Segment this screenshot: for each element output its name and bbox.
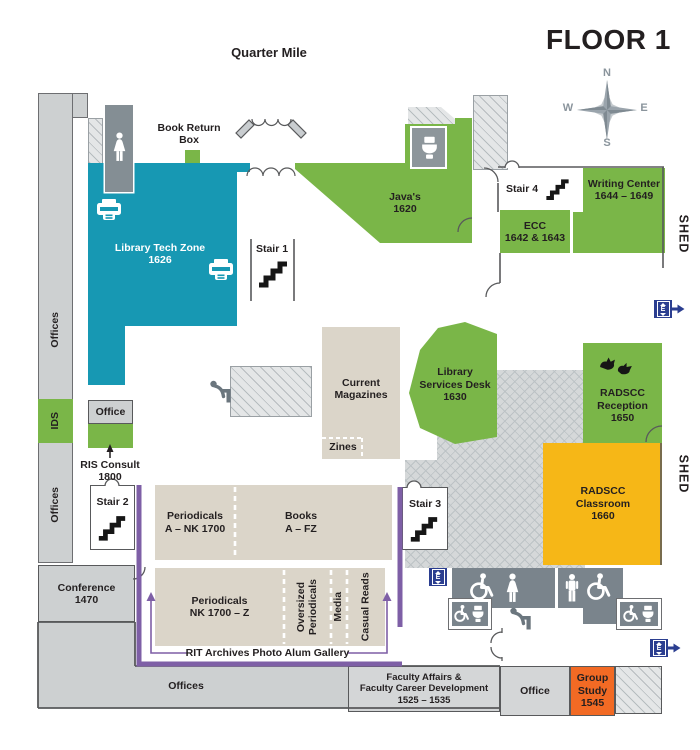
floor-plan-map: Offices IDS Offices Library Tech Zone 16…	[0, 0, 700, 750]
archives-gallery-label: RIT Archives Photo Alum Gallery	[175, 646, 360, 660]
ids-label: IDS	[38, 399, 73, 443]
toilet-icon	[641, 605, 655, 623]
library-tech-zone-label: Library Tech Zone 1626	[95, 240, 225, 268]
hatched-block-entry	[473, 95, 508, 170]
stair-3-label: Stair 3	[402, 498, 448, 510]
asl-hands-icon	[598, 355, 634, 377]
right-arrow-icon	[668, 642, 681, 654]
man-icon	[563, 572, 580, 604]
drinking-fountain-icon	[208, 378, 232, 403]
toilet-icon	[471, 605, 485, 623]
offices-left-lower-label: Offices	[38, 475, 73, 535]
compass-n: N	[597, 67, 617, 79]
elevator-icon: E	[654, 300, 685, 318]
office-lower-label: Office	[500, 666, 570, 716]
casual-reads-label: Casual Reads	[347, 568, 385, 646]
stair-4-label: Stair 4	[500, 183, 544, 195]
current-magazines-label: Current Magazines	[322, 375, 400, 403]
faculty-affairs-label: Faculty Affairs & Faculty Career Develop…	[348, 669, 500, 709]
compass-w: W	[558, 102, 578, 114]
printer-icon	[207, 258, 234, 281]
compass-e: E	[634, 102, 654, 114]
books-a-fz-label: Books A – FZ	[240, 485, 362, 560]
hatched-block-bottom-right	[615, 666, 662, 714]
conference-label: Conference 1470	[38, 580, 135, 608]
office-upper-label: Office	[88, 400, 133, 424]
radscc-classroom-label: RADSCC Classroom 1660	[548, 483, 658, 525]
stair-2-label: Stair 2	[90, 496, 135, 508]
wheelchair-icon	[453, 605, 470, 623]
woman-icon	[110, 131, 128, 163]
woman-icon	[503, 572, 521, 604]
elevator-icon: E	[429, 568, 447, 586]
media-label: Media	[331, 568, 347, 646]
drinking-fountain-icon	[508, 605, 532, 630]
elevator-icon: E	[650, 639, 681, 657]
quarter-mile-label: Quarter Mile	[214, 45, 324, 61]
floor-title: FLOOR 1	[546, 24, 671, 56]
stairs-icon	[96, 512, 128, 542]
ris-consult-label: RIS Consult 1800	[68, 458, 152, 484]
shed-label-top: SHED	[672, 212, 694, 256]
radscc-reception-label: RADSCC Reception 1650	[583, 385, 662, 427]
oversized-periodicals-label: Oversized Periodicals	[284, 568, 331, 646]
periodicals-a-nk-label: Periodicals A – NK 1700	[155, 485, 235, 560]
shed-label-bottom: SHED	[672, 452, 694, 496]
book-return-label: Book Return Box	[154, 121, 224, 147]
stairs-icon	[256, 258, 290, 288]
toilet-icon	[419, 134, 439, 161]
ecc-label: ECC 1642 & 1643	[500, 219, 570, 245]
library-services-desk-label: Library Services Desk 1630	[413, 364, 497, 406]
hatched-block-center	[230, 366, 312, 417]
book-return-box	[185, 150, 200, 163]
stair-1-label: Stair 1	[250, 243, 294, 255]
offices-left-upper-label: Offices	[38, 300, 73, 360]
wheelchair-icon	[468, 573, 495, 602]
room-writing-center-annex	[573, 212, 665, 253]
wheelchair-icon	[622, 605, 639, 623]
zines-label: Zines	[325, 440, 361, 455]
stairs-icon	[408, 513, 440, 543]
right-arrow-icon	[672, 303, 685, 315]
printer-icon	[95, 198, 122, 221]
stairs-icon	[544, 173, 571, 204]
wheelchair-icon	[585, 573, 612, 602]
group-study-label: Group Study 1545	[570, 668, 615, 714]
writing-center-label: Writing Center 1644 – 1649	[583, 177, 665, 203]
compass-rose-icon	[577, 80, 637, 140]
periodicals-nk-z-label: Periodicals NK 1700 – Z	[155, 568, 284, 646]
offices-bottom-label: Offices	[140, 676, 232, 696]
javas-label: Java's 1620	[375, 190, 435, 216]
room-offices-step	[72, 93, 88, 118]
room-javas	[295, 118, 472, 243]
room-ris-consult	[88, 424, 133, 448]
